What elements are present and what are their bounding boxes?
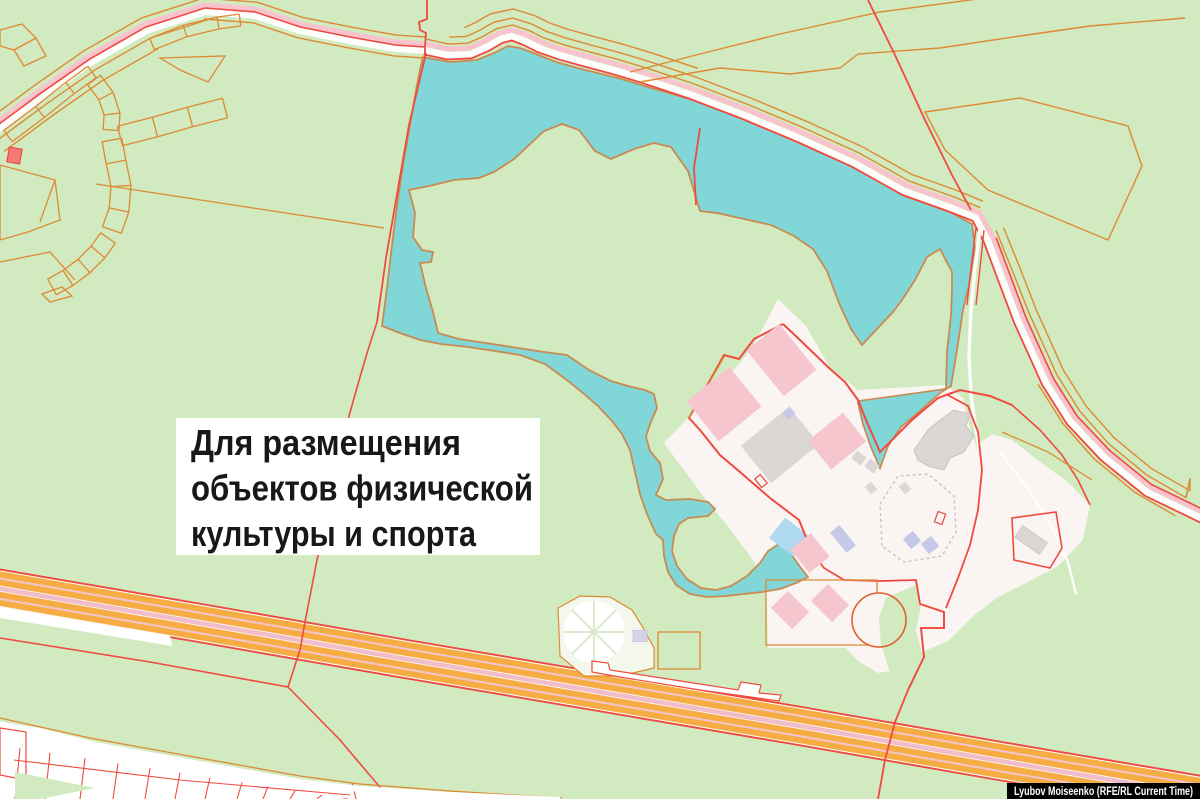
svg-text:Для размещения: Для размещения xyxy=(191,422,461,463)
svg-text:культуры и спорта: культуры и спорта xyxy=(191,513,477,554)
svg-text:объектов физической: объектов физической xyxy=(191,468,533,509)
svg-text:Lyubov Moiseenko (RFE/RL Curre: Lyubov Moiseenko (RFE/RL Current Time) xyxy=(1014,784,1193,798)
